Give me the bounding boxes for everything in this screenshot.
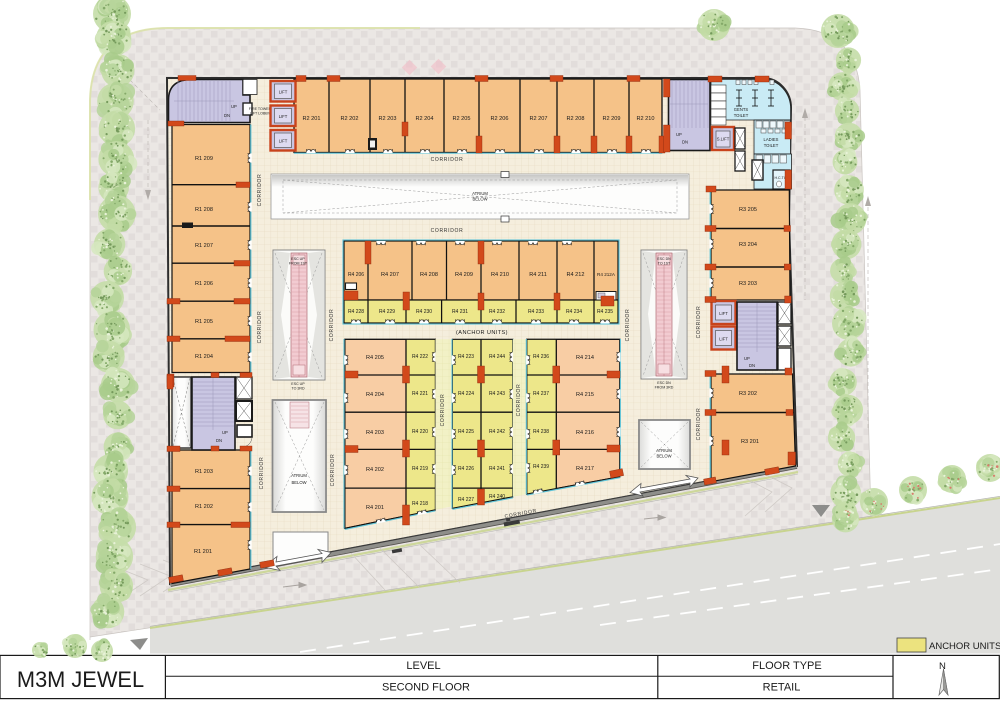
- svg-text:R4 232: R4 232: [489, 309, 505, 315]
- svg-text:SECOND FLOOR: SECOND FLOOR: [382, 682, 470, 694]
- svg-text:ANCHOR UNITS: ANCHOR UNITS: [929, 641, 1000, 652]
- svg-text:R1 203: R1 203: [195, 469, 213, 475]
- svg-text:ESC UP: ESC UP: [291, 382, 305, 386]
- svg-text:R2 208: R2 208: [566, 116, 584, 122]
- svg-text:R2 206: R2 206: [490, 116, 508, 122]
- svg-text:BELOW: BELOW: [472, 197, 487, 202]
- svg-text:ESC UP: ESC UP: [291, 257, 305, 261]
- svg-text:R4 226: R4 226: [458, 466, 474, 472]
- svg-text:R4 243: R4 243: [489, 391, 505, 397]
- svg-text:UP: UP: [744, 356, 750, 361]
- svg-text:ATRIUM: ATRIUM: [472, 191, 488, 196]
- svg-text:LIFT: LIFT: [279, 114, 288, 119]
- svg-text:CORRIDOR: CORRIDOR: [696, 306, 702, 339]
- svg-text:TO 3RD: TO 3RD: [291, 387, 305, 391]
- svg-text:DN: DN: [224, 113, 230, 118]
- svg-text:R4 224: R4 224: [458, 391, 474, 397]
- svg-text:CORRIDOR: CORRIDOR: [431, 157, 464, 163]
- svg-text:R2 205: R2 205: [452, 116, 470, 122]
- svg-text:R4 223: R4 223: [458, 354, 474, 360]
- svg-text:FLOOR TYPE: FLOOR TYPE: [752, 660, 821, 672]
- svg-text:BELOW: BELOW: [291, 480, 306, 485]
- svg-text:CORRIDOR: CORRIDOR: [431, 228, 464, 234]
- svg-text:R4 241: R4 241: [489, 466, 505, 472]
- svg-text:R1 207: R1 207: [195, 243, 213, 249]
- svg-text:R4 222: R4 222: [412, 354, 428, 360]
- svg-text:R3 202: R3 202: [739, 391, 757, 397]
- svg-text:R4 234: R4 234: [566, 309, 582, 315]
- svg-text:LIFT: LIFT: [279, 139, 288, 144]
- svg-text:R4 230: R4 230: [416, 309, 432, 315]
- svg-text:R4 231: R4 231: [452, 309, 468, 315]
- svg-text:LIFT LOBBY: LIFT LOBBY: [250, 112, 271, 116]
- svg-text:R3 201: R3 201: [741, 439, 759, 445]
- svg-text:R4 212: R4 212: [566, 272, 584, 278]
- svg-text:R4 207: R4 207: [381, 272, 399, 278]
- svg-text:LIFT: LIFT: [279, 90, 288, 95]
- svg-text:ESC DN: ESC DN: [657, 381, 671, 385]
- svg-text:CORRIDOR: CORRIDOR: [330, 454, 336, 487]
- svg-text:R2 204: R2 204: [415, 116, 433, 122]
- svg-text:N: N: [939, 661, 946, 672]
- svg-text:R2 210: R2 210: [636, 116, 654, 122]
- svg-text:R4 208: R4 208: [420, 272, 438, 278]
- svg-text:LADIES: LADIES: [764, 137, 779, 142]
- svg-text:GENTS: GENTS: [734, 107, 749, 112]
- svg-text:LEVEL: LEVEL: [406, 660, 440, 672]
- svg-text:CORRIDOR: CORRIDOR: [257, 174, 263, 207]
- svg-text:ESC DN: ESC DN: [657, 257, 671, 261]
- svg-text:TOILET: TOILET: [734, 113, 749, 118]
- svg-text:(ANCHOR UNITS): (ANCHOR UNITS): [456, 330, 508, 336]
- svg-text:DN: DN: [749, 363, 755, 368]
- svg-text:CORRIDOR: CORRIDOR: [696, 408, 702, 441]
- svg-text:R1 201: R1 201: [194, 549, 212, 555]
- svg-text:R1 204: R1 204: [195, 354, 213, 360]
- svg-text:CORRIDOR: CORRIDOR: [516, 384, 522, 417]
- svg-text:R4 202: R4 202: [366, 467, 384, 473]
- svg-text:R3 203: R3 203: [739, 281, 757, 287]
- svg-text:ATRIUM: ATRIUM: [656, 448, 672, 453]
- svg-text:R4 216: R4 216: [576, 430, 594, 436]
- svg-text:R4 240: R4 240: [489, 494, 505, 500]
- svg-text:R4 236: R4 236: [533, 354, 549, 360]
- svg-text:R2 202: R2 202: [340, 116, 358, 122]
- svg-text:FROM 3RD: FROM 3RD: [655, 386, 674, 390]
- svg-text:R1 206: R1 206: [195, 281, 213, 287]
- svg-text:R4 238: R4 238: [533, 429, 549, 435]
- svg-text:R4 237: R4 237: [533, 391, 549, 397]
- svg-text:UP: UP: [676, 132, 682, 137]
- svg-text:DN: DN: [682, 140, 688, 145]
- svg-text:UP: UP: [222, 430, 228, 435]
- svg-text:R2 203: R2 203: [378, 116, 396, 122]
- svg-text:R1 205: R1 205: [195, 319, 213, 325]
- svg-text:R2 209: R2 209: [602, 116, 620, 122]
- svg-text:R3 204: R3 204: [739, 242, 757, 248]
- svg-text:R4 214: R4 214: [576, 355, 594, 361]
- svg-text:R4 205: R4 205: [366, 355, 384, 361]
- svg-text:FIRE TOWER: FIRE TOWER: [249, 107, 272, 111]
- svg-text:R4 210: R4 210: [491, 272, 509, 278]
- svg-text:TO 1ST: TO 1ST: [658, 262, 671, 266]
- svg-text:R4 204: R4 204: [366, 392, 384, 398]
- svg-text:R1 209: R1 209: [195, 156, 213, 162]
- svg-text:CORRIDOR: CORRIDOR: [440, 394, 446, 427]
- svg-text:CORRIDOR: CORRIDOR: [257, 311, 263, 344]
- svg-text:R4 206: R4 206: [348, 272, 364, 278]
- svg-text:R4 215: R4 215: [576, 392, 594, 398]
- svg-text:R4 212A: R4 212A: [597, 272, 616, 277]
- svg-text:R4 225: R4 225: [458, 429, 474, 435]
- svg-text:R4 244: R4 244: [489, 354, 505, 360]
- svg-text:R3 205: R3 205: [739, 207, 757, 213]
- svg-text:R4 217: R4 217: [576, 466, 594, 472]
- svg-text:R4 227: R4 227: [458, 497, 474, 503]
- svg-text:DN: DN: [216, 438, 222, 443]
- svg-text:R1 202: R1 202: [195, 504, 213, 510]
- svg-text:FROM 1ST: FROM 1ST: [289, 262, 308, 266]
- svg-text:R4 203: R4 203: [366, 430, 384, 436]
- svg-text:R4 211: R4 211: [529, 272, 547, 278]
- svg-text:R4 218: R4 218: [412, 501, 428, 507]
- svg-text:R4 201: R4 201: [366, 505, 384, 511]
- svg-text:R4 235: R4 235: [597, 309, 613, 315]
- svg-text:R4 209: R4 209: [455, 272, 473, 278]
- svg-text:ATRIUM: ATRIUM: [291, 473, 307, 478]
- svg-text:CORRIDOR: CORRIDOR: [329, 309, 335, 342]
- svg-text:R4 228: R4 228: [348, 309, 364, 315]
- svg-text:R2 207: R2 207: [529, 116, 547, 122]
- svg-text:R4 242: R4 242: [489, 429, 505, 435]
- svg-text:R2 201: R2 201: [302, 116, 320, 122]
- svg-text:R1 208: R1 208: [195, 207, 213, 213]
- svg-text:RETAIL: RETAIL: [763, 682, 801, 694]
- svg-text:LIFT: LIFT: [719, 337, 728, 342]
- svg-text:CORRIDOR: CORRIDOR: [259, 457, 265, 490]
- svg-text:R4 219: R4 219: [412, 466, 428, 472]
- svg-text:R4 220: R4 220: [412, 429, 428, 435]
- svg-text:UP: UP: [231, 104, 237, 109]
- svg-text:R4 229: R4 229: [379, 309, 395, 315]
- svg-text:LIFT: LIFT: [719, 311, 728, 316]
- svg-text:TOILET: TOILET: [764, 143, 779, 148]
- svg-text:CORRIDOR: CORRIDOR: [625, 309, 631, 342]
- svg-text:BELOW: BELOW: [656, 454, 671, 459]
- svg-text:R4 239: R4 239: [533, 464, 549, 470]
- svg-text:R4 221: R4 221: [412, 391, 428, 397]
- svg-text:S.LIFT: S.LIFT: [717, 137, 730, 142]
- svg-text:M3M JEWEL: M3M JEWEL: [17, 667, 144, 692]
- svg-text:R4 233: R4 233: [528, 309, 544, 315]
